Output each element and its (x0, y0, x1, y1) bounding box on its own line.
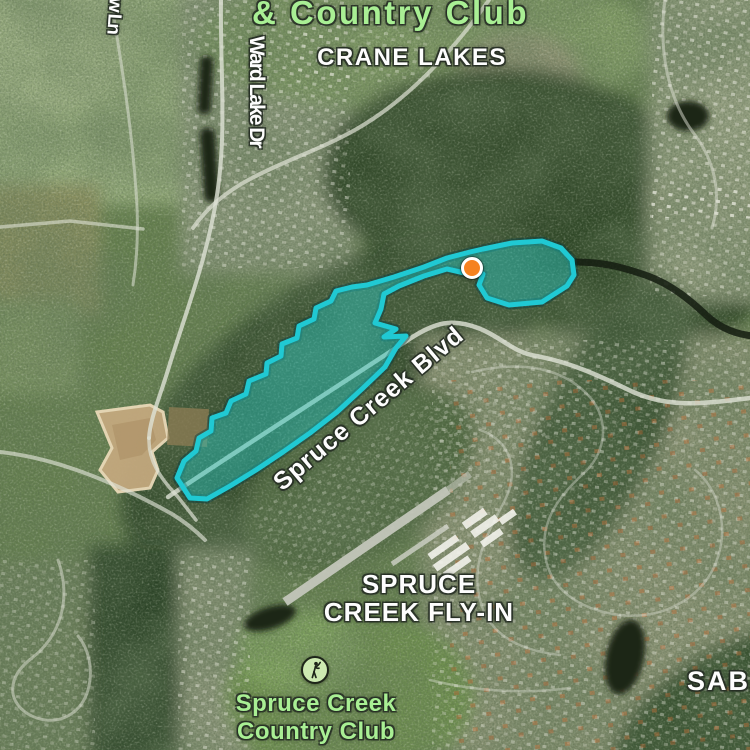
label-spruce-creek-country-club-line2: Country Club (236, 718, 397, 746)
label-spruce-creek-country-club-line1: Spruce Creek (236, 690, 397, 718)
location-marker[interactable] (461, 257, 483, 279)
label-saba-partial[interactable]: SABA (687, 666, 750, 697)
satellite-imagery (0, 0, 750, 750)
label-country-club-title[interactable]: & Country Club (252, 0, 529, 32)
golfer-glyph (305, 660, 325, 680)
label-ward-lake-dr: Ward Lake Dr (244, 36, 268, 147)
label-spruce-creek-country-club[interactable]: Spruce Creek Country Club (236, 690, 397, 746)
label-crane-lakes[interactable]: CRANE LAKES (317, 44, 507, 72)
label-spruce-creek-fly-in-line1: SPRUCE (324, 570, 514, 598)
label-spruce-creek-fly-in[interactable]: SPRUCE CREEK FLY-IN (324, 570, 514, 626)
label-spruce-creek-fly-in-line2: CREEK FLY-IN (324, 598, 514, 626)
map-canvas[interactable]: & Country Club CRANE LAKES Ward Lake Dr … (0, 0, 750, 750)
golfer-icon[interactable] (301, 656, 329, 684)
label-ow-ln: ow Ln (101, 0, 126, 34)
